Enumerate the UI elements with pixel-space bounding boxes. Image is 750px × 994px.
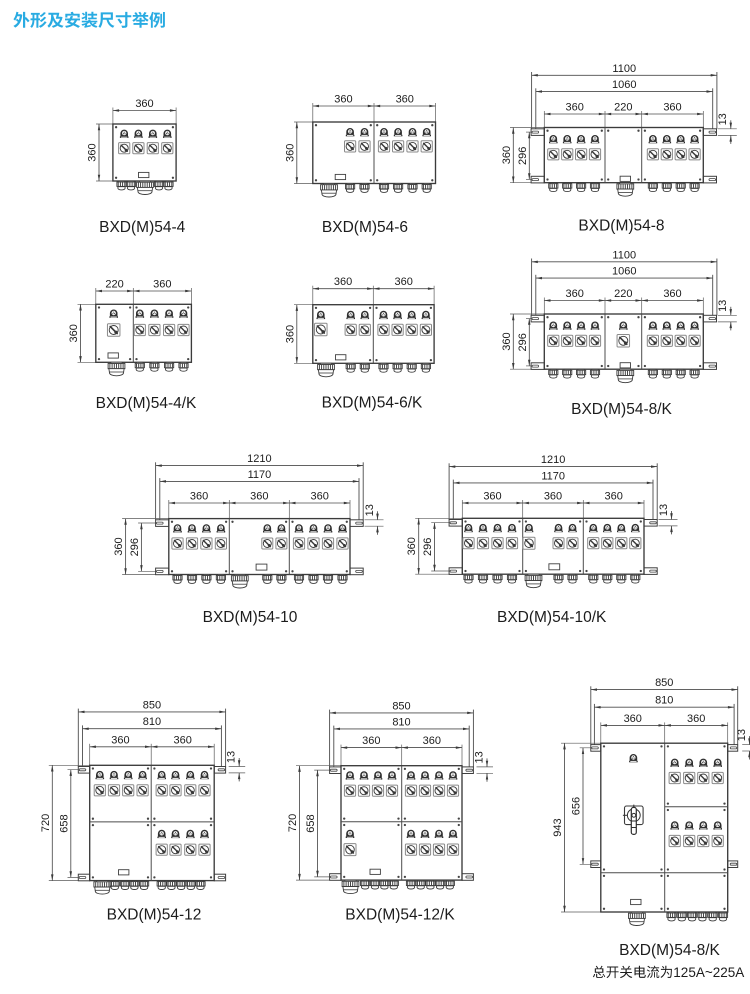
- svg-text:296: 296: [517, 147, 529, 165]
- svg-text:13: 13: [473, 751, 485, 763]
- svg-text:360: 360: [483, 491, 501, 503]
- svg-text:360: 360: [334, 94, 352, 106]
- svg-text:BXD(M)54-10: BXD(M)54-10: [203, 609, 298, 626]
- svg-text:1060: 1060: [612, 266, 636, 278]
- svg-text:360: 360: [687, 713, 705, 725]
- svg-text:360: 360: [565, 102, 583, 114]
- svg-text:1170: 1170: [248, 469, 272, 481]
- svg-text:360: 360: [190, 491, 208, 503]
- svg-text:13: 13: [717, 113, 729, 125]
- svg-text:360: 360: [604, 491, 622, 503]
- svg-text:360: 360: [310, 491, 328, 503]
- svg-text:658: 658: [305, 814, 317, 832]
- svg-text:296: 296: [517, 333, 529, 351]
- svg-text:BXD(M)54-6: BXD(M)54-6: [322, 219, 408, 236]
- svg-text:360: 360: [68, 324, 80, 342]
- svg-text:1210: 1210: [541, 454, 565, 466]
- svg-text:658: 658: [58, 814, 70, 832]
- svg-text:850: 850: [143, 699, 161, 711]
- svg-text:810: 810: [655, 695, 673, 707]
- svg-text:BXD(M)54-6/K: BXD(M)54-6/K: [322, 395, 423, 412]
- svg-text:360: 360: [423, 735, 441, 747]
- svg-text:360: 360: [111, 734, 129, 746]
- svg-text:810: 810: [143, 716, 161, 728]
- svg-text:360: 360: [396, 94, 414, 106]
- svg-text:850: 850: [392, 700, 410, 712]
- svg-text:943: 943: [552, 818, 564, 836]
- svg-text:360: 360: [501, 146, 513, 164]
- svg-text:BXD(M)54-4: BXD(M)54-4: [99, 219, 186, 236]
- svg-text:220: 220: [105, 279, 123, 291]
- svg-text:BXD(M)54-10/K: BXD(M)54-10/K: [497, 609, 607, 626]
- svg-text:13: 13: [717, 300, 729, 312]
- svg-text:360: 360: [624, 713, 642, 725]
- svg-text:360: 360: [362, 735, 380, 747]
- svg-text:720: 720: [287, 814, 299, 832]
- svg-text:656: 656: [571, 797, 583, 815]
- svg-text:BXD(M)54-12/K: BXD(M)54-12/K: [345, 907, 455, 924]
- svg-text:360: 360: [113, 537, 125, 555]
- svg-text:220: 220: [614, 288, 632, 300]
- svg-text:360: 360: [284, 144, 296, 162]
- svg-text:720: 720: [40, 814, 52, 832]
- svg-text:13: 13: [364, 504, 376, 516]
- svg-text:810: 810: [392, 716, 410, 728]
- svg-text:1100: 1100: [612, 63, 636, 75]
- svg-text:13: 13: [658, 504, 670, 516]
- svg-text:296: 296: [129, 538, 141, 556]
- svg-text:360: 360: [153, 279, 171, 291]
- svg-text:1210: 1210: [247, 453, 271, 465]
- svg-text:BXD(M)54-8/K: BXD(M)54-8/K: [619, 942, 720, 959]
- svg-text:360: 360: [406, 537, 418, 555]
- svg-text:360: 360: [284, 325, 296, 343]
- svg-text:850: 850: [655, 677, 673, 689]
- svg-text:360: 360: [663, 102, 681, 114]
- svg-text:296: 296: [422, 538, 434, 556]
- svg-text:1100: 1100: [612, 249, 636, 261]
- svg-text:360: 360: [174, 734, 192, 746]
- svg-text:360: 360: [544, 491, 562, 503]
- svg-text:BXD(M)54-4/K: BXD(M)54-4/K: [96, 395, 197, 412]
- svg-text:1170: 1170: [541, 470, 565, 482]
- svg-text:360: 360: [135, 98, 153, 110]
- svg-text:360: 360: [663, 288, 681, 300]
- svg-text:360: 360: [87, 143, 99, 161]
- svg-text:13: 13: [226, 751, 238, 763]
- svg-text:1060: 1060: [612, 79, 636, 91]
- svg-text:360: 360: [334, 276, 352, 288]
- svg-text:220: 220: [614, 102, 632, 114]
- svg-text:360: 360: [250, 491, 268, 503]
- svg-text:360: 360: [395, 276, 413, 288]
- svg-text:13: 13: [736, 729, 748, 741]
- svg-text:360: 360: [565, 288, 583, 300]
- svg-text:BXD(M)54-8/K: BXD(M)54-8/K: [571, 401, 672, 418]
- svg-text:125A~225A: 125A~225A: [673, 965, 744, 980]
- svg-text:360: 360: [501, 332, 513, 350]
- svg-text:BXD(M)54-12: BXD(M)54-12: [107, 907, 202, 924]
- svg-text:BXD(M)54-8: BXD(M)54-8: [578, 218, 664, 235]
